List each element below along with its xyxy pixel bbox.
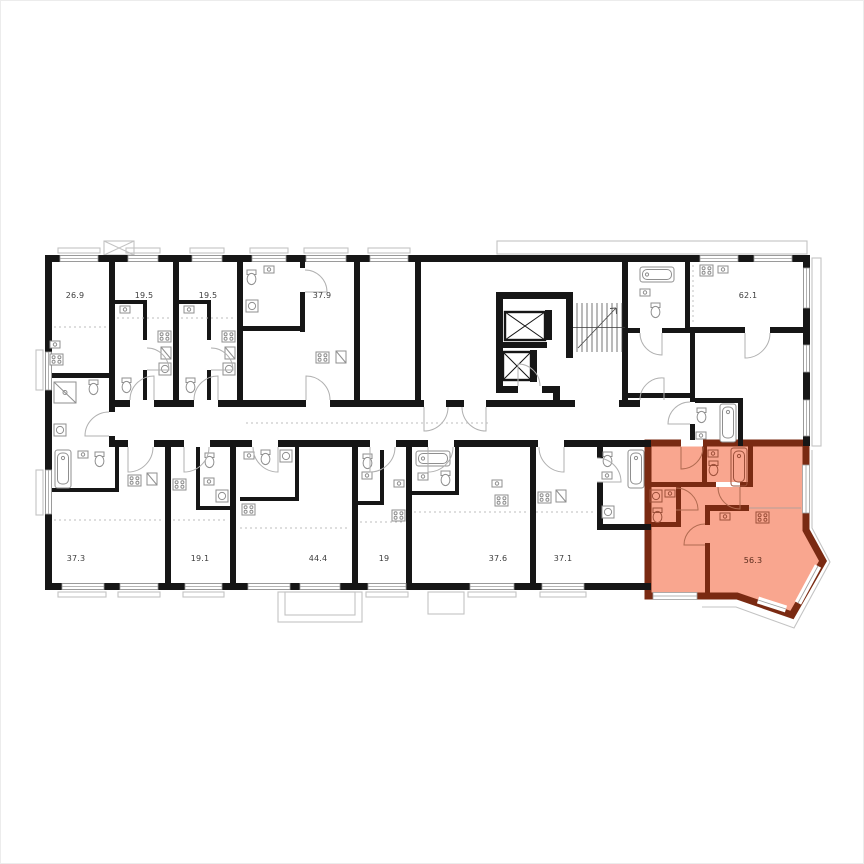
washing-machine-icon [246,300,258,312]
unit-area-label: 19.5 [199,291,218,300]
floor-plan-screenshot: 26.9 19.5 19.5 37.9 62.1 37.3 19.1 44.4 … [0,0,864,864]
unit-area-label: 37.3 [67,554,86,563]
toilet-icon [651,303,660,318]
shower-icon [54,382,76,403]
stove-icon [392,510,405,521]
fridge-icon [336,351,346,363]
door-swing-icon [128,447,153,472]
unit-area-label: 19 [379,554,390,563]
stove-icon [128,475,141,486]
fridge-icon [147,473,157,485]
door-swing-icon [305,270,327,292]
toilet-icon [261,450,270,465]
kitchen-sink-icon [394,480,404,487]
fridge-icon [225,347,235,359]
stove-icon [158,331,171,342]
unit-area-label: 37.9 [313,291,332,300]
bathtub-icon [640,267,674,282]
washing-machine-icon [216,490,228,502]
toilet-icon [205,453,214,468]
door-swing-icon [85,412,109,436]
sink-icon [120,306,130,313]
stove-icon [495,495,508,506]
toilet-icon [363,454,372,469]
toilet-icon [186,378,195,393]
door-swing-icon [130,376,154,400]
sink-icon [78,451,88,458]
sink-icon [418,473,428,480]
unit-area-label: 26.9 [66,291,85,300]
fridge-icon [161,347,171,359]
bathtub-icon [55,450,71,488]
canopy-outline [497,241,807,254]
washing-machine-icon [602,506,614,518]
sink-icon [184,306,194,313]
sink-icon [244,452,254,459]
sink-icon [362,472,372,479]
door-swing-icon [194,376,218,400]
sink-icon [50,341,60,348]
kitchen-sink-icon [718,266,728,273]
stove-icon [222,331,235,342]
sink-icon [640,289,650,296]
floor-plan-canvas: 26.9 19.5 19.5 37.9 62.1 37.3 19.1 44.4 … [0,0,864,864]
unit-area-label: 37.1 [554,554,573,563]
door-swing-icon [668,402,690,424]
stairs-icon [573,303,625,352]
unit-area-label: 62.1 [739,291,758,300]
kitchen-sink-icon [492,480,502,487]
toilet-icon [95,452,104,467]
toilet-icon [441,471,450,486]
stove-icon [538,492,551,503]
door-swing-icon [424,407,448,431]
selected-unit-area-label[interactable]: 56.3 [744,556,763,565]
bathtub-icon [720,404,736,442]
door-swing-icon [462,407,486,431]
door-swing-icon [539,447,564,472]
stove-icon [242,504,255,515]
washing-machine-icon [54,424,66,436]
selected-apartment-region[interactable] [648,443,823,615]
stove-icon [700,265,713,276]
sink-icon [602,472,612,479]
porch-outline [428,592,464,614]
unit-area-label: 19.5 [135,291,154,300]
toilet-icon [697,408,706,423]
unit-area-label: 37.6 [489,554,508,563]
toilet-icon [89,380,98,395]
unit-area-label: 19.1 [191,554,210,563]
selected-apartment [648,440,823,616]
stove-icon [50,354,63,365]
stove-icon [173,479,186,490]
toilet-icon [122,378,131,393]
balcony-outline [278,592,362,622]
stove-icon [316,352,329,363]
door-swing-icon [745,333,770,358]
washing-machine-icon [280,450,292,462]
toilet-icon [247,270,256,285]
unit-area-label: 44.4 [309,554,328,563]
sink-icon [696,432,706,439]
bathtub-icon [416,451,450,466]
door-swing-icon [306,376,330,400]
fridge-icon [556,490,566,502]
right-facade-band [812,258,821,446]
door-swing-icon [640,333,662,355]
sink-icon [204,478,214,485]
sink-icon [264,266,274,273]
bathtub-icon [628,450,644,488]
